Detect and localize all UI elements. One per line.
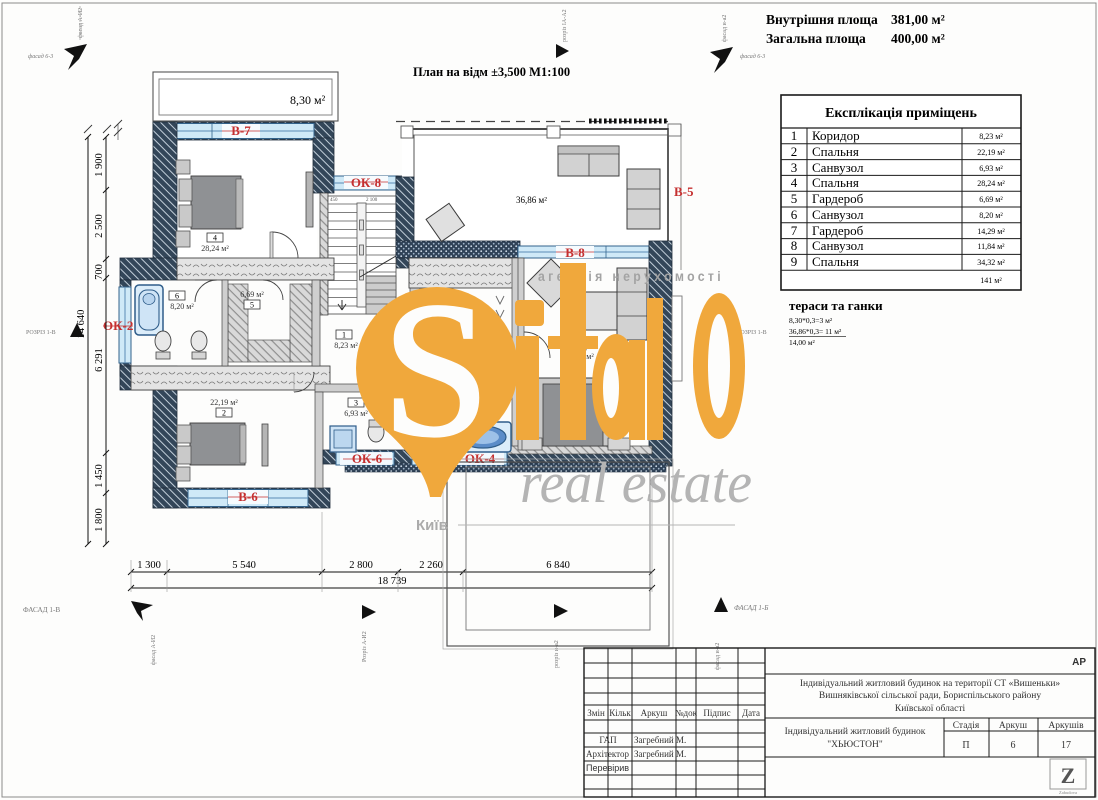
svg-text:В-5: В-5 xyxy=(674,184,694,199)
svg-text:5: 5 xyxy=(791,191,798,206)
svg-text:700: 700 xyxy=(94,264,105,280)
svg-text:Z: Z xyxy=(1061,763,1076,788)
svg-text:фасад А-И2: фасад А-И2 xyxy=(150,635,157,665)
svg-text:Стадія: Стадія xyxy=(953,721,980,731)
svg-text:2: 2 xyxy=(222,409,226,418)
svg-text:8,30 м²: 8,30 м² xyxy=(290,93,326,107)
svg-text:АР: АР xyxy=(1072,657,1086,668)
svg-text:П: П xyxy=(962,740,969,751)
svg-text:Гардероб: Гардероб xyxy=(812,223,864,238)
svg-text:"ХЬЮСТОН": "ХЬЮСТОН" xyxy=(827,740,883,750)
svg-text:28,24 м²: 28,24 м² xyxy=(201,244,229,253)
svg-text:18 739: 18 739 xyxy=(378,576,407,587)
svg-text:1 900: 1 900 xyxy=(94,153,105,177)
svg-text:36,86 м²: 36,86 м² xyxy=(516,195,547,205)
svg-text:2 260: 2 260 xyxy=(419,560,443,571)
svg-text:8,20 м²: 8,20 м² xyxy=(979,211,1003,220)
svg-text:ОК-8: ОК-8 xyxy=(351,175,382,190)
svg-text:2: 2 xyxy=(791,144,798,159)
svg-text:450: 450 xyxy=(330,198,338,203)
svg-text:Вишняківської сільської ради,: Вишняківської сільської ради, Бориспільс… xyxy=(819,690,1041,701)
svg-text:1 800: 1 800 xyxy=(94,508,105,532)
svg-text:2 100: 2 100 xyxy=(366,198,378,203)
svg-text:Київської області: Київської області xyxy=(895,703,966,714)
svg-text:фасад 6-3: фасад 6-3 xyxy=(740,53,765,60)
svg-text:Внутрішня площа: Внутрішня площа xyxy=(766,12,878,27)
svg-text:фасад А-И2: фасад А-И2 xyxy=(77,8,84,38)
svg-text:6,69 м²: 6,69 м² xyxy=(979,195,1003,204)
svg-text:Індивідуальний житловий будино: Індивідуальний житловий будинок на терит… xyxy=(800,678,1061,689)
svg-text:6,93 м²: 6,93 м² xyxy=(344,409,368,418)
svg-text:Загребний М.: Загребний М. xyxy=(634,735,686,745)
svg-text:S: S xyxy=(383,263,490,476)
svg-text:Архітектор: Архітектор xyxy=(586,749,629,759)
svg-text:8: 8 xyxy=(791,238,798,253)
svg-text:Загребний М.: Загребний М. xyxy=(634,749,686,759)
svg-text:2 500: 2 500 xyxy=(94,214,105,238)
svg-text:В-8: В-8 xyxy=(565,245,585,260)
svg-text:тераси та ганки: тераси та ганки xyxy=(789,298,883,313)
svg-text:розріз и-а2: розріз и-а2 xyxy=(554,640,560,668)
svg-text:Підпис: Підпис xyxy=(703,708,730,718)
svg-text:Аркуш: Аркуш xyxy=(641,708,668,718)
svg-text:14,29 м²: 14,29 м² xyxy=(977,227,1005,236)
svg-text:1: 1 xyxy=(342,331,346,340)
svg-text:2 800: 2 800 xyxy=(349,560,373,571)
svg-text:6: 6 xyxy=(1011,740,1016,751)
svg-text:8,20 м²: 8,20 м² xyxy=(170,302,194,311)
svg-text:36,86*0,3= 11 м²: 36,86*0,3= 11 м² xyxy=(789,327,842,336)
svg-text:8,30*0,3=3 м²: 8,30*0,3=3 м² xyxy=(789,316,833,325)
svg-text:Zabudova: Zabudova xyxy=(1059,790,1077,795)
svg-text:РОЗРІЗ 1-В: РОЗРІЗ 1-В xyxy=(26,330,56,336)
svg-text:Розріз А-И2: Розріз А-И2 xyxy=(362,631,368,662)
svg-text:3: 3 xyxy=(791,160,798,175)
svg-text:Санвузол: Санвузол xyxy=(812,160,864,175)
svg-text:Коридор: Коридор xyxy=(812,128,860,143)
svg-text:Експлікація приміщень: Експлікація приміщень xyxy=(825,106,977,121)
svg-text:6 291: 6 291 xyxy=(94,348,105,372)
svg-text:Гардероб: Гардероб xyxy=(812,191,864,206)
svg-text:14,00 м²: 14,00 м² xyxy=(789,338,815,347)
svg-text:Загальна площа: Загальна площа xyxy=(766,31,866,46)
svg-text:6,93 м²: 6,93 м² xyxy=(979,164,1003,173)
svg-text:400,00 м²: 400,00 м² xyxy=(891,31,945,46)
svg-text:Аркуш: Аркуш xyxy=(999,721,1028,731)
svg-text:Санвузол: Санвузол xyxy=(812,238,864,253)
svg-text:6: 6 xyxy=(791,207,798,222)
svg-text:28,24 м²: 28,24 м² xyxy=(977,179,1005,188)
svg-text:Санвузол: Санвузол xyxy=(812,207,864,222)
svg-text:34,32 м²: 34,32 м² xyxy=(977,258,1005,267)
svg-text:фасад и-а2: фасад и-а2 xyxy=(721,15,728,42)
svg-text:План на відм ±3,500 М1:100: План на відм ±3,500 М1:100 xyxy=(413,65,570,79)
svg-text:Індивідуальний житловий будино: Індивідуальний житловий будинок xyxy=(785,726,926,737)
svg-text:141 м²: 141 м² xyxy=(980,276,1002,285)
svg-text:1 450: 1 450 xyxy=(94,464,105,488)
svg-text:фасад 6-3: фасад 6-3 xyxy=(28,53,53,60)
svg-text:6,69 м²: 6,69 м² xyxy=(240,290,264,299)
svg-text:17: 17 xyxy=(1061,740,1071,751)
svg-text:розріз ІА-А2: розріз ІА-А2 xyxy=(562,9,568,42)
svg-text:Перевірив: Перевірив xyxy=(586,763,629,773)
svg-text:ОК-6: ОК-6 xyxy=(352,451,383,466)
svg-text:1: 1 xyxy=(791,128,798,143)
svg-text:ФАСАД 1-В: ФАСАД 1-В xyxy=(23,606,60,614)
svg-text:22,19 м²: 22,19 м² xyxy=(977,148,1005,157)
svg-text:1 300: 1 300 xyxy=(137,560,161,571)
svg-text:5: 5 xyxy=(250,301,254,310)
svg-text:ГАП: ГАП xyxy=(599,735,617,745)
svg-text:Аркушів: Аркушів xyxy=(1048,721,1084,731)
svg-text:real estate: real estate xyxy=(520,450,752,515)
svg-text:381,00 м²: 381,00 м² xyxy=(891,12,945,27)
svg-text:Спальня: Спальня xyxy=(812,254,859,269)
svg-text:8,23 м²: 8,23 м² xyxy=(979,132,1003,141)
svg-text:3: 3 xyxy=(354,399,358,408)
svg-text:8,23 м²: 8,23 м² xyxy=(334,341,358,350)
svg-text:7: 7 xyxy=(791,223,798,238)
svg-text:4: 4 xyxy=(213,234,217,243)
svg-text:6: 6 xyxy=(175,292,179,301)
svg-text:5 540: 5 540 xyxy=(232,560,256,571)
svg-text:6 840: 6 840 xyxy=(546,560,570,571)
svg-text:ОК-2: ОК-2 xyxy=(103,318,133,333)
svg-text:Змін: Змін xyxy=(587,708,605,718)
svg-text:11,84 м²: 11,84 м² xyxy=(977,242,1005,251)
svg-text:4: 4 xyxy=(791,175,798,190)
svg-text:Київ: Київ xyxy=(416,517,448,534)
svg-text:Спальня: Спальня xyxy=(812,175,859,190)
svg-text:9: 9 xyxy=(791,254,798,269)
svg-text:№док: №док xyxy=(675,708,698,718)
svg-text:Кільк: Кільк xyxy=(609,708,631,718)
svg-text:В-7: В-7 xyxy=(231,123,251,138)
svg-text:Дата: Дата xyxy=(742,708,760,718)
svg-text:ФАСАД 1-Б: ФАСАД 1-Б xyxy=(734,604,768,612)
svg-text:В-6: В-6 xyxy=(238,489,258,504)
svg-text:22,19 м²: 22,19 м² xyxy=(210,398,238,407)
svg-text:фасад и-а2: фасад и-а2 xyxy=(714,643,721,670)
svg-text:Спальня: Спальня xyxy=(812,144,859,159)
